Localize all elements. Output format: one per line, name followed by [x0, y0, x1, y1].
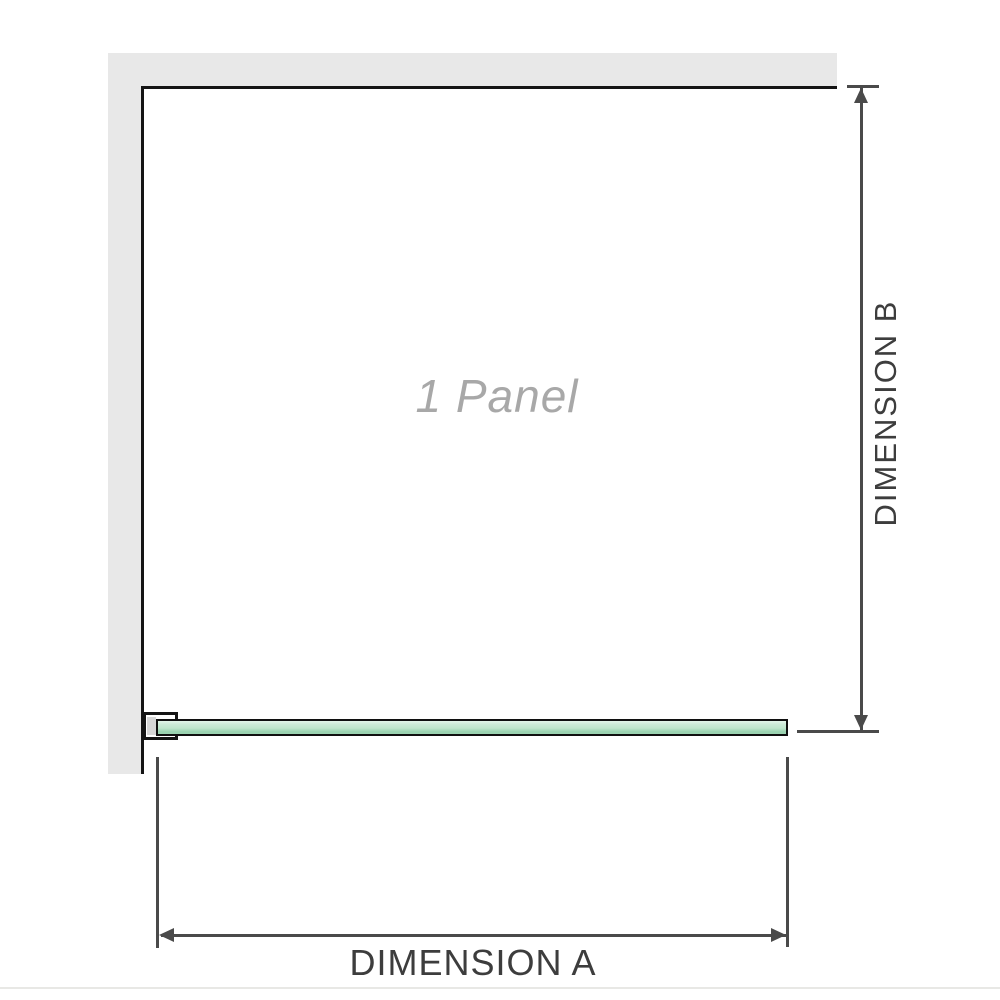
arrow-up-icon [854, 88, 868, 103]
dimension-b-label: DIMENSION B [868, 300, 904, 527]
arrow-right-icon [771, 928, 786, 942]
dimension-b-line [860, 87, 863, 731]
dimension-a-line [161, 934, 786, 937]
dimension-a-left-extension [156, 757, 159, 948]
arrow-down-icon [854, 715, 868, 730]
panel-count-label: 1 Panel [415, 369, 578, 423]
dimension-a-label: DIMENSION A [349, 942, 596, 984]
bottom-divider [0, 987, 1000, 989]
wall-top-band [108, 53, 837, 86]
wall-left-band [108, 53, 141, 774]
dimension-b-bottom-tick [797, 730, 879, 733]
panel-outline-left-edge [141, 86, 144, 774]
dimension-a-right-extension [786, 757, 789, 947]
glass-panel-bar [156, 719, 788, 736]
panel-dimension-diagram: 1 Panel DIMENSION B DIMENSION A [0, 0, 1000, 1000]
wall-bracket-pad [147, 717, 156, 735]
panel-outline-top-edge [141, 86, 837, 89]
arrow-left-icon [159, 928, 174, 942]
